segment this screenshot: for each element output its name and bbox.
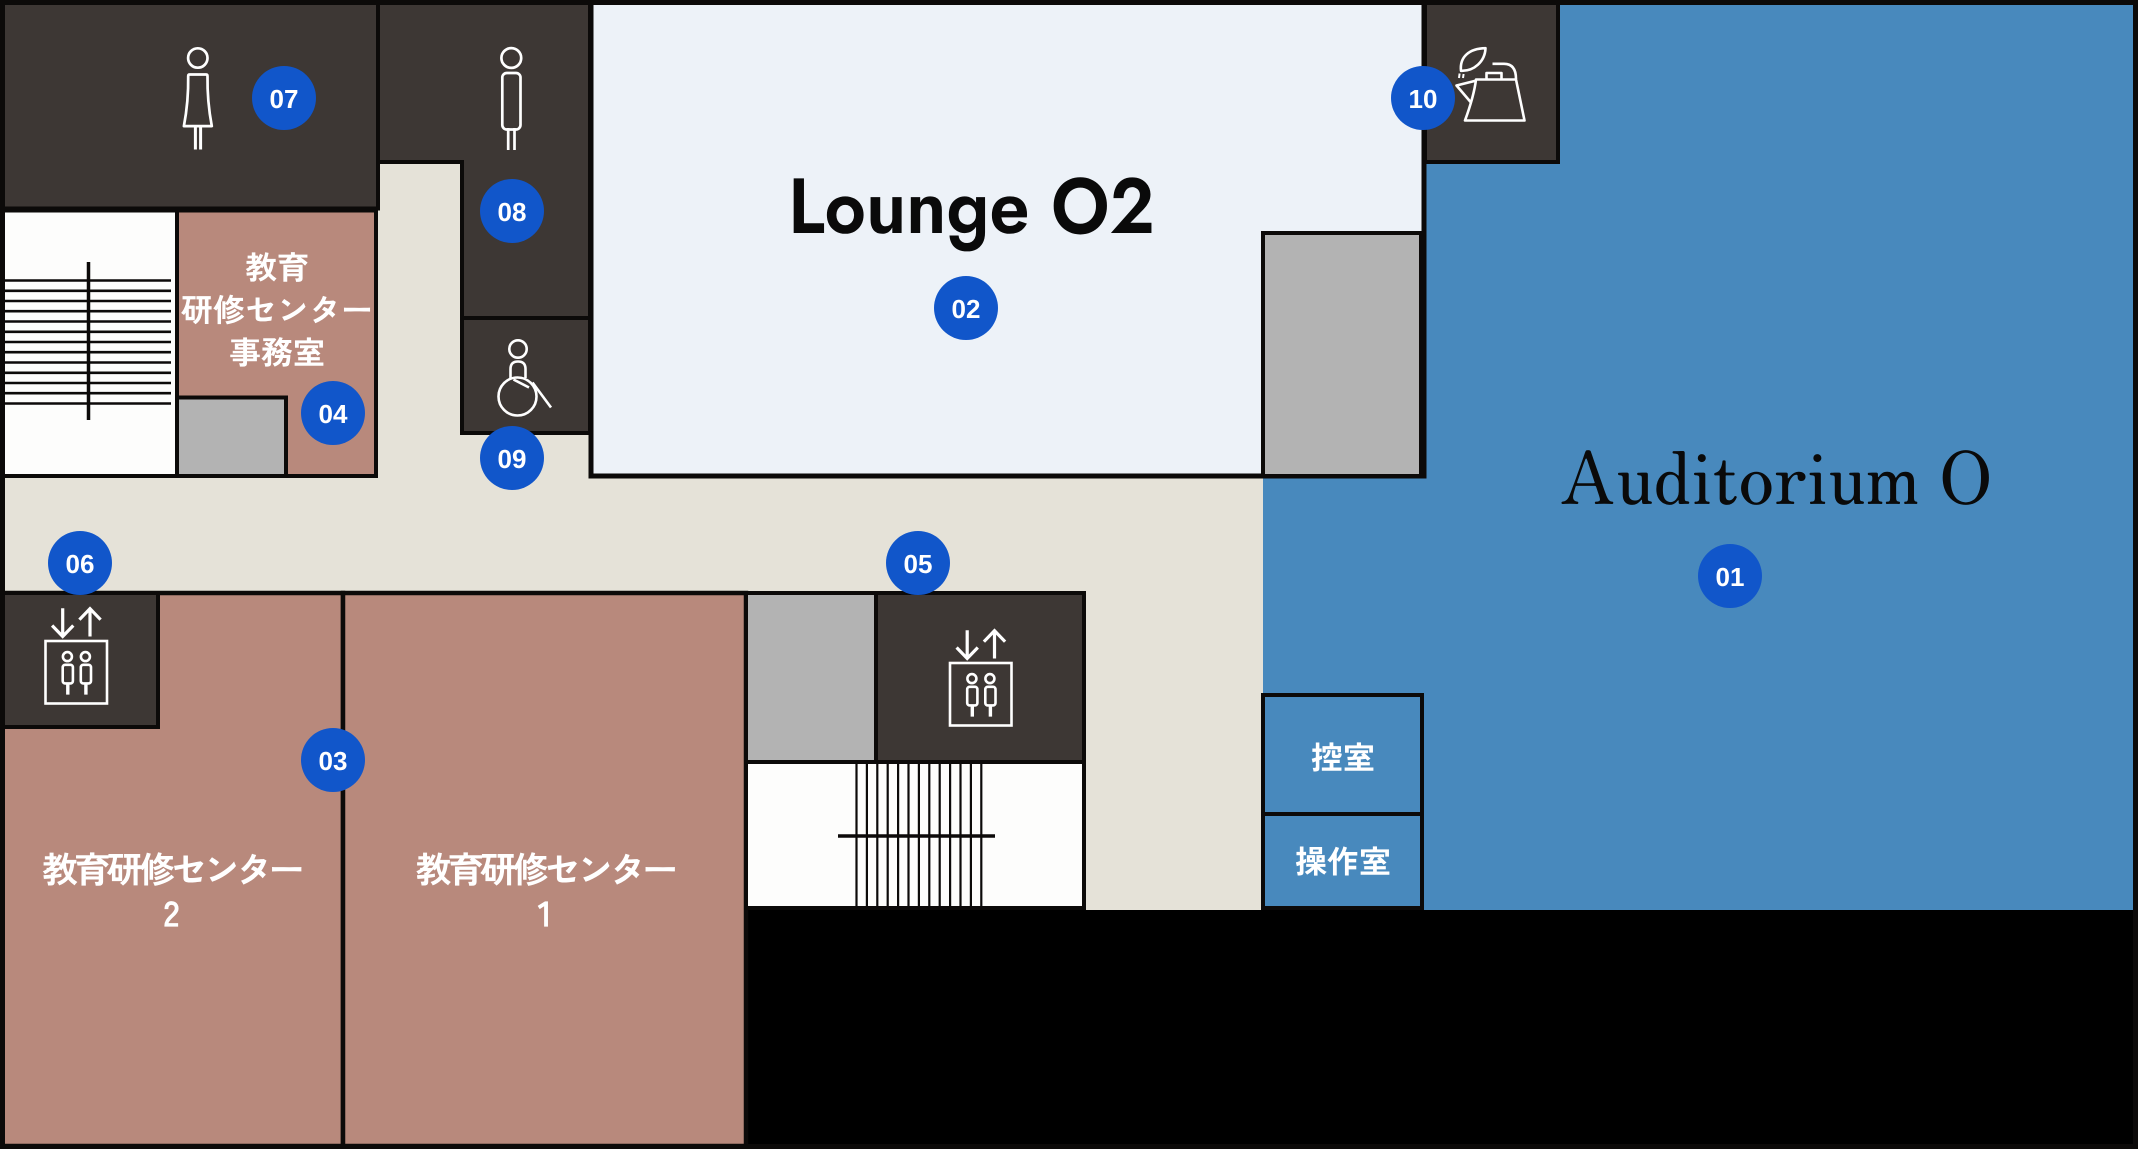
- svg-text:10: 10: [1409, 84, 1438, 114]
- svg-text:05: 05: [904, 549, 933, 579]
- svg-text:03: 03: [319, 746, 348, 776]
- svg-text:02: 02: [952, 294, 981, 324]
- svg-text:07: 07: [270, 84, 299, 114]
- svg-text:09: 09: [498, 444, 527, 474]
- svg-text:08: 08: [498, 197, 527, 227]
- svg-text:01: 01: [1716, 562, 1745, 592]
- svg-text:04: 04: [319, 399, 348, 429]
- svg-text:06: 06: [66, 549, 95, 579]
